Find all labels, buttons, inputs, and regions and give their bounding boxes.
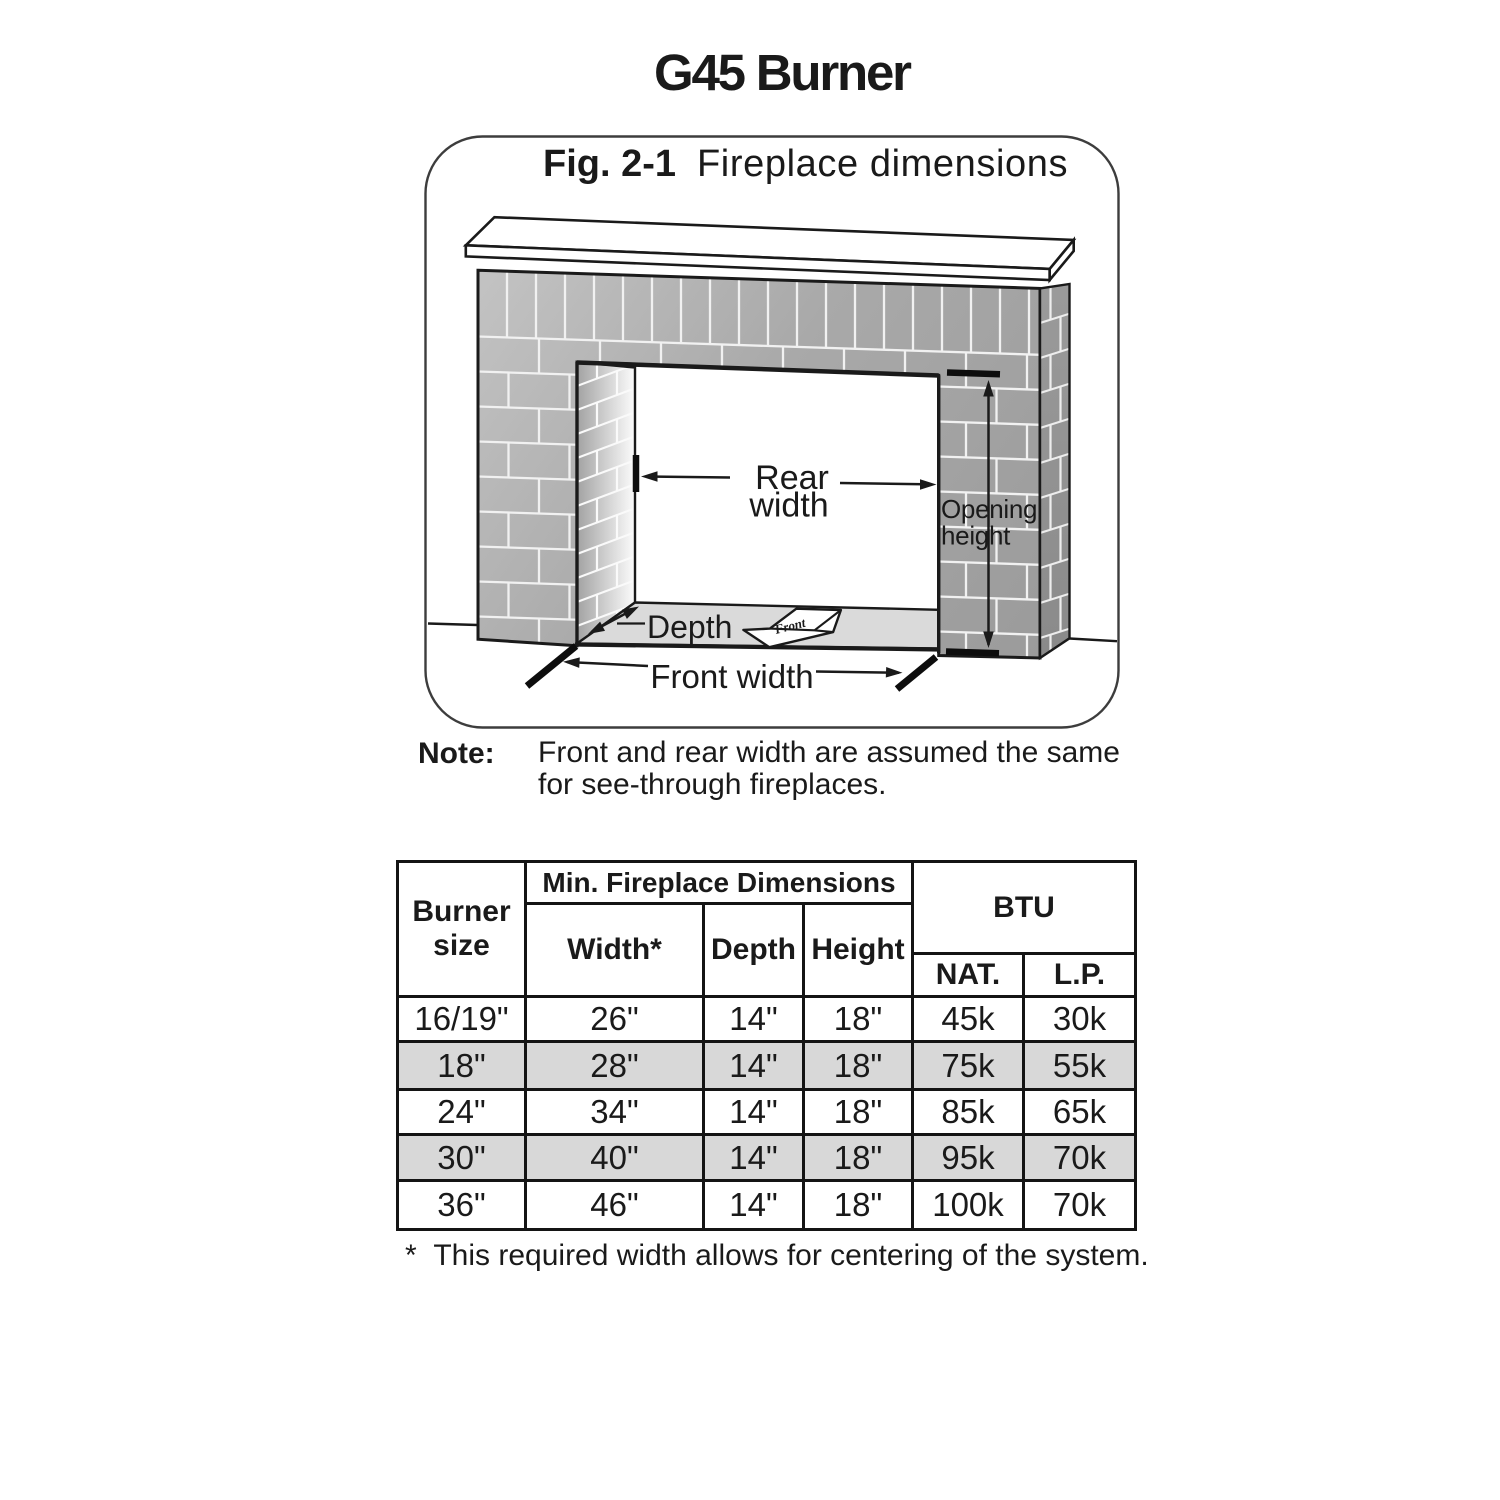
svg-text:Front width: Front width: [650, 658, 813, 695]
svg-text:width: width: [748, 487, 828, 525]
svg-text:Fireplace dimensions: Fireplace dimensions: [697, 143, 1068, 185]
svg-text:Opening: Opening: [941, 494, 1037, 524]
svg-text:height: height: [941, 521, 1011, 551]
svg-text:Depth: Depth: [647, 609, 732, 645]
svg-text:Fig. 2-1: Fig. 2-1: [543, 143, 676, 185]
